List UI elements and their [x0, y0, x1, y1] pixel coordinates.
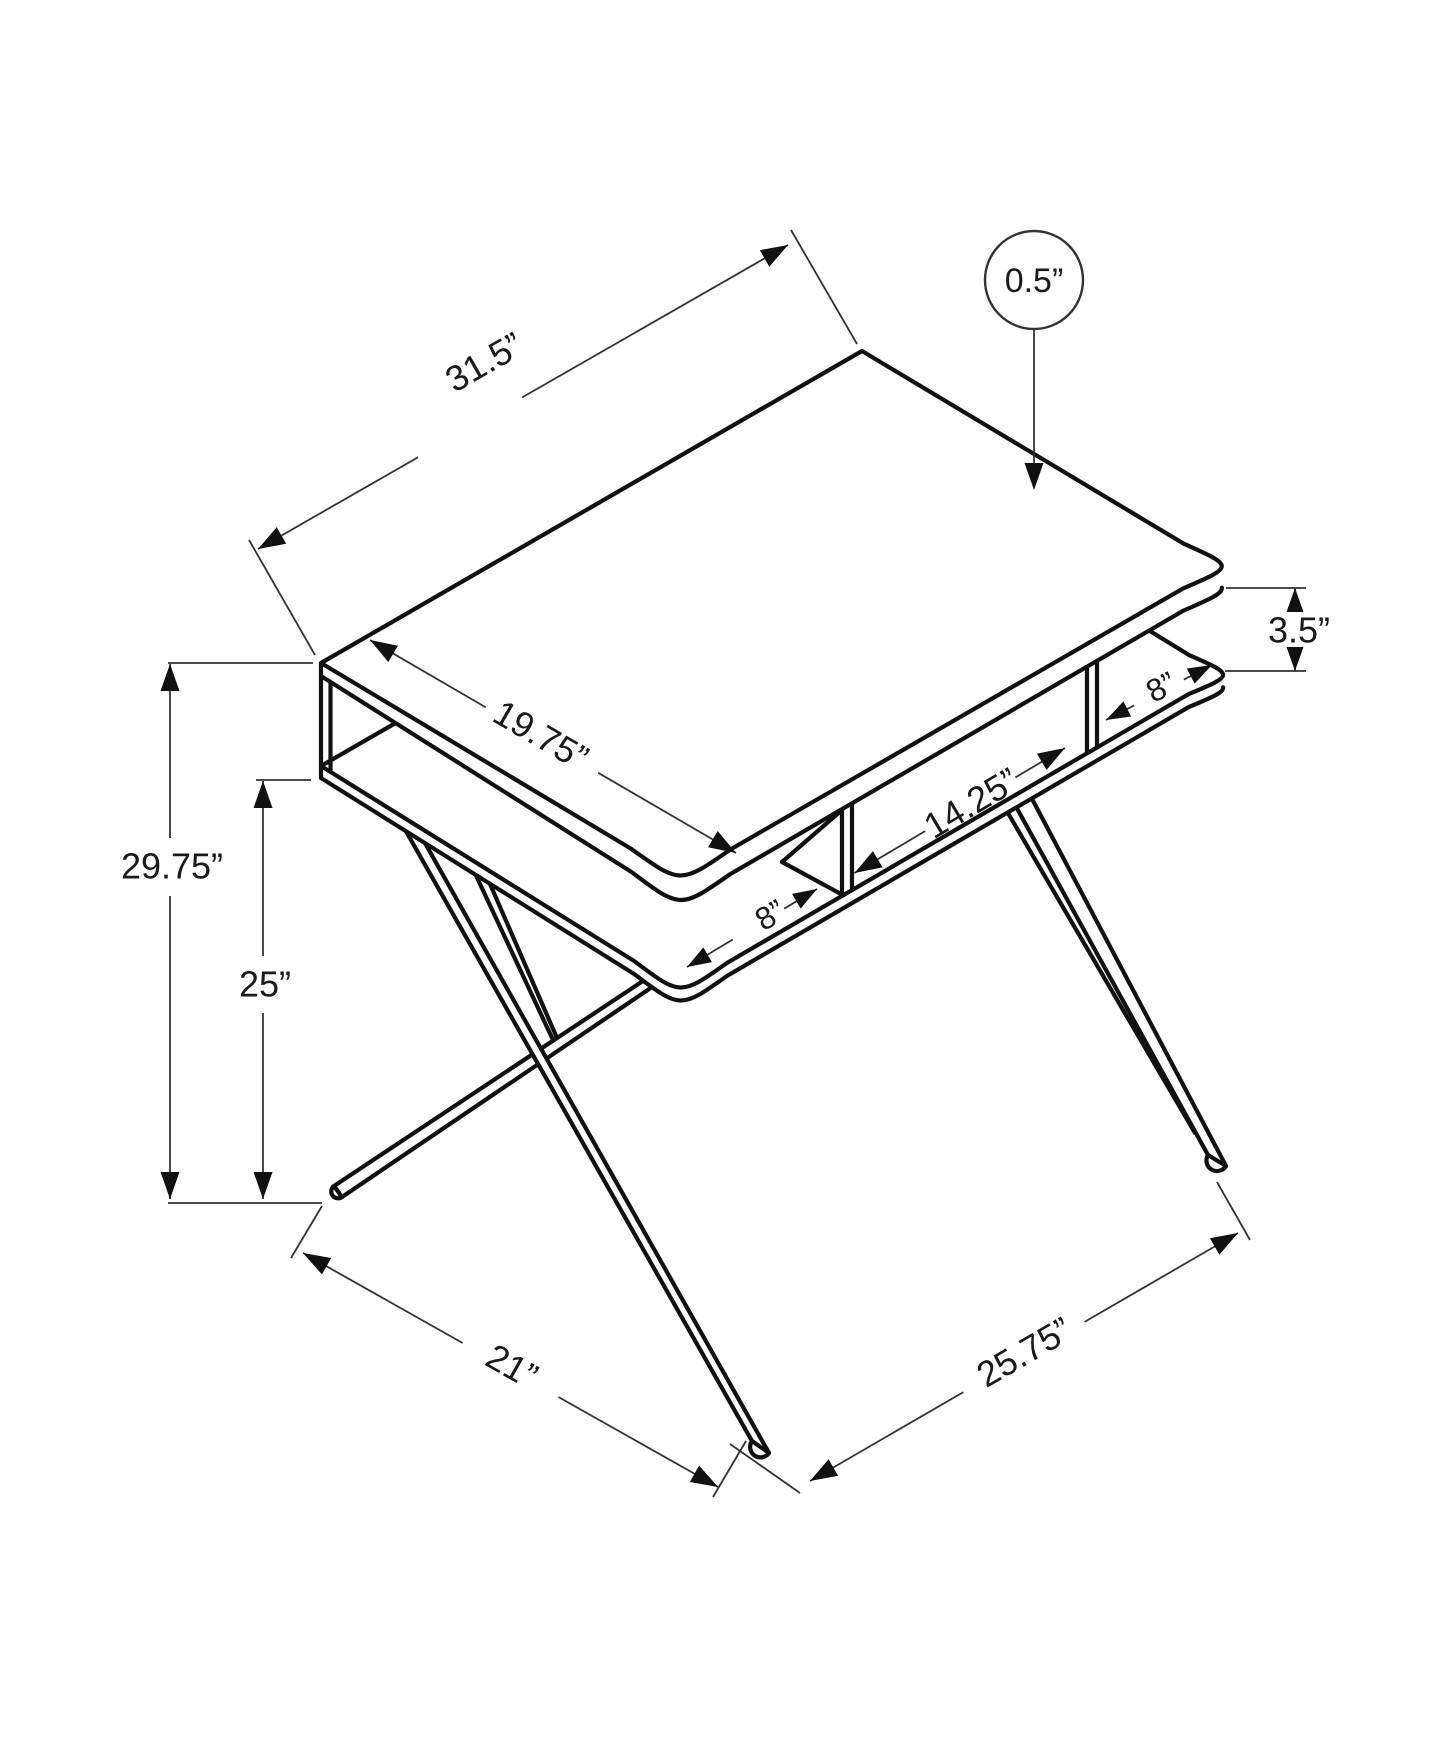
svg-text:29.75”: 29.75” — [121, 846, 223, 887]
svg-text:3.5”: 3.5” — [1268, 610, 1330, 651]
svg-text:25”: 25” — [239, 964, 291, 1005]
svg-text:0.5”: 0.5” — [1005, 262, 1064, 300]
